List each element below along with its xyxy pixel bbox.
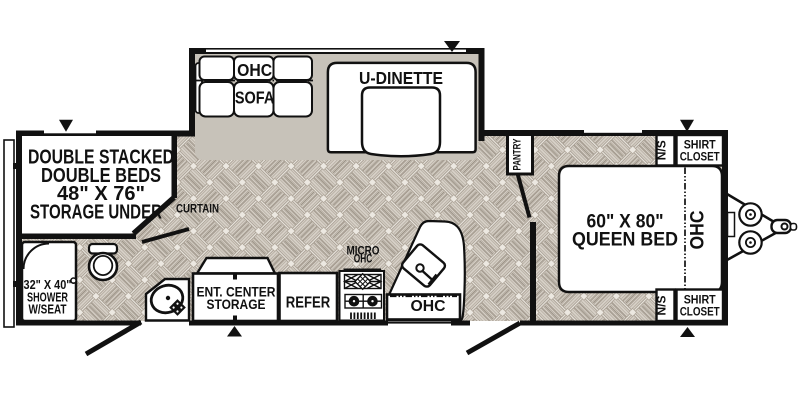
svg-text:OHC: OHC	[687, 211, 709, 250]
svg-text:OHC: OHC	[354, 252, 373, 266]
svg-text:STORAGE UNDER: STORAGE UNDER	[30, 200, 162, 223]
svg-text:N/S: N/S	[655, 296, 669, 316]
svg-text:CURTAIN: CURTAIN	[176, 202, 219, 216]
svg-text:OHC: OHC	[411, 298, 446, 315]
svg-text:W/SEAT: W/SEAT	[29, 301, 67, 316]
svg-text:STORAGE: STORAGE	[207, 297, 266, 312]
svg-text:QUEEN BED: QUEEN BED	[572, 230, 678, 251]
svg-text:REFER: REFER	[286, 295, 331, 312]
svg-text:N/S: N/S	[655, 140, 669, 160]
svg-text:U-DINETTE: U-DINETTE	[359, 68, 443, 88]
svg-text:PANTRY: PANTRY	[512, 138, 524, 170]
svg-text:OHC: OHC	[237, 60, 272, 80]
svg-text:SOFA: SOFA	[235, 88, 275, 108]
svg-text:CLOSET: CLOSET	[680, 150, 721, 164]
svg-text:CLOSET: CLOSET	[680, 305, 721, 319]
